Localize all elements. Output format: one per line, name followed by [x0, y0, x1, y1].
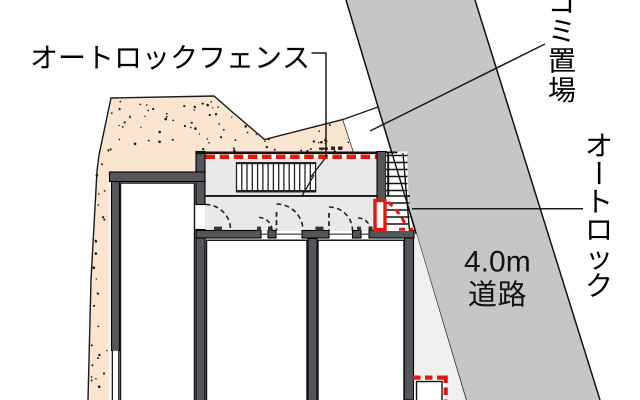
- svg-text:4.0m: 4.0m: [464, 246, 531, 279]
